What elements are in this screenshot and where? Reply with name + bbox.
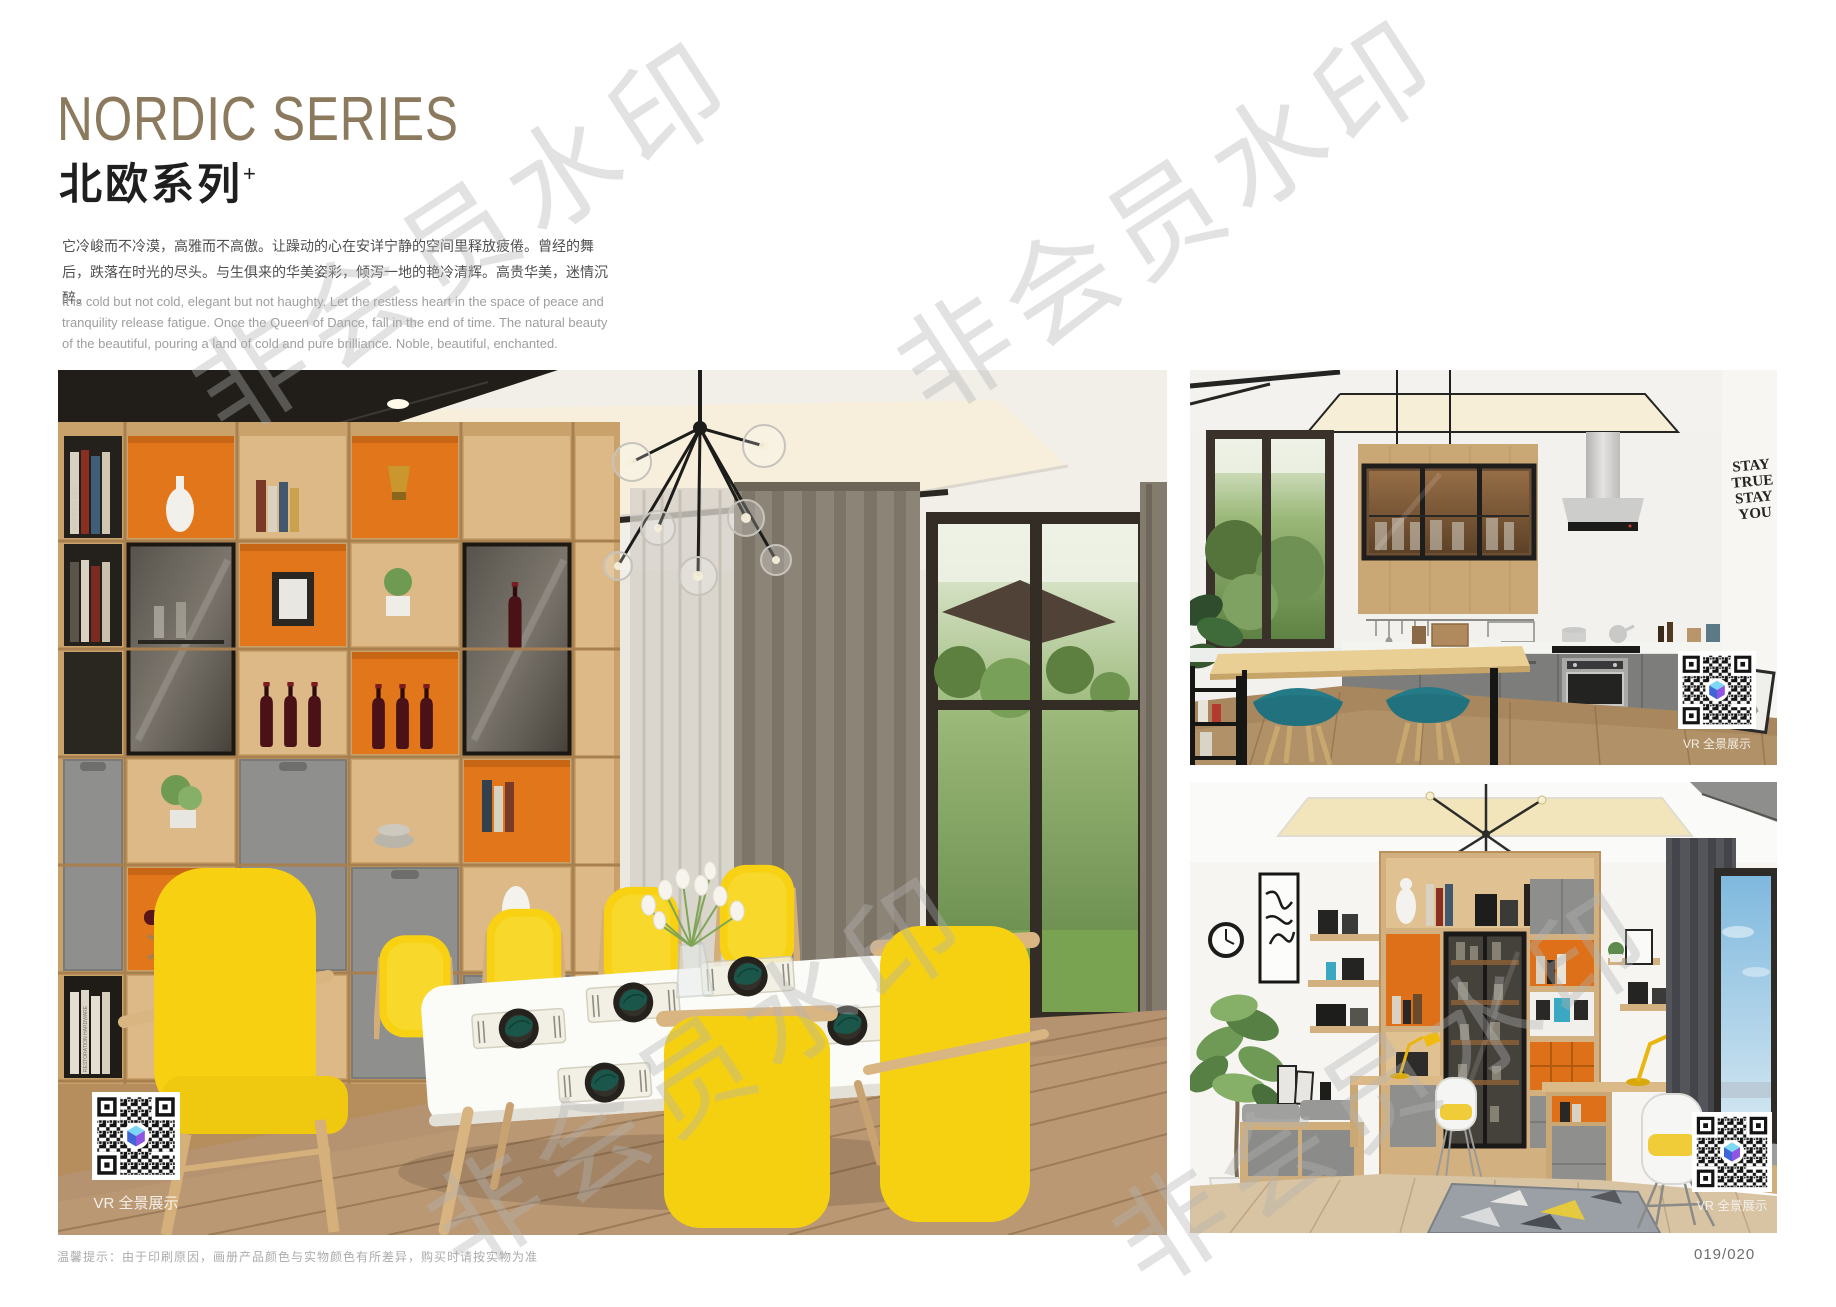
qr-code [1678,651,1756,729]
wall-clock [1210,924,1242,956]
page-subtitle: 北欧系列+ [59,150,256,212]
glass-wall-cabinet [1364,466,1534,558]
abstract-poster [1260,874,1298,982]
photo-dining-room: HARPER LEE C.J REDWINE RESTORATION HARDW… [58,370,1167,1235]
vr-label: VR 全景展示 [93,1194,178,1212]
qr-code [1692,1112,1772,1192]
page-subtitle-zh: 北欧系列 [59,161,243,209]
photo-study-room: VR 全景展示 [1190,782,1777,1233]
page-subtitle-plus: + [243,161,256,186]
book-spine-text: HARPER LEE [72,485,79,530]
qr-code [92,1092,180,1180]
photo-kitchen: STAY TRUE STAY YOU [1190,370,1777,765]
catalog-page: NORDIC SERIES 北欧系列+ 它冷峻而不冷漠，高雅而不高傲。让躁动的心… [0,0,1836,1307]
ceiling [1190,370,1777,432]
book-spine-text: RESTORATION HARDWARE [83,1005,89,1072]
page-number: 019/020 [1694,1246,1755,1263]
window [1205,430,1334,648]
book-spine-text: C.J REDWINE [83,592,90,638]
area-rug [1428,1184,1660,1233]
description-english: It is cold but not cold, elegant but not… [62,291,614,354]
page-title: NORDIC SERIES [57,84,459,155]
window [1714,868,1777,1144]
footer-tip: 温馨提示：由于印刷原因，画册产品颜色与实物颜色有所差异，购买时请按实物为准 [57,1248,538,1265]
vr-label: VR 全景展示 [1683,736,1751,751]
vr-label: VR 全景展示 [1697,1198,1768,1213]
svg-text:YOU: YOU [1738,504,1773,523]
oven [1562,658,1628,710]
